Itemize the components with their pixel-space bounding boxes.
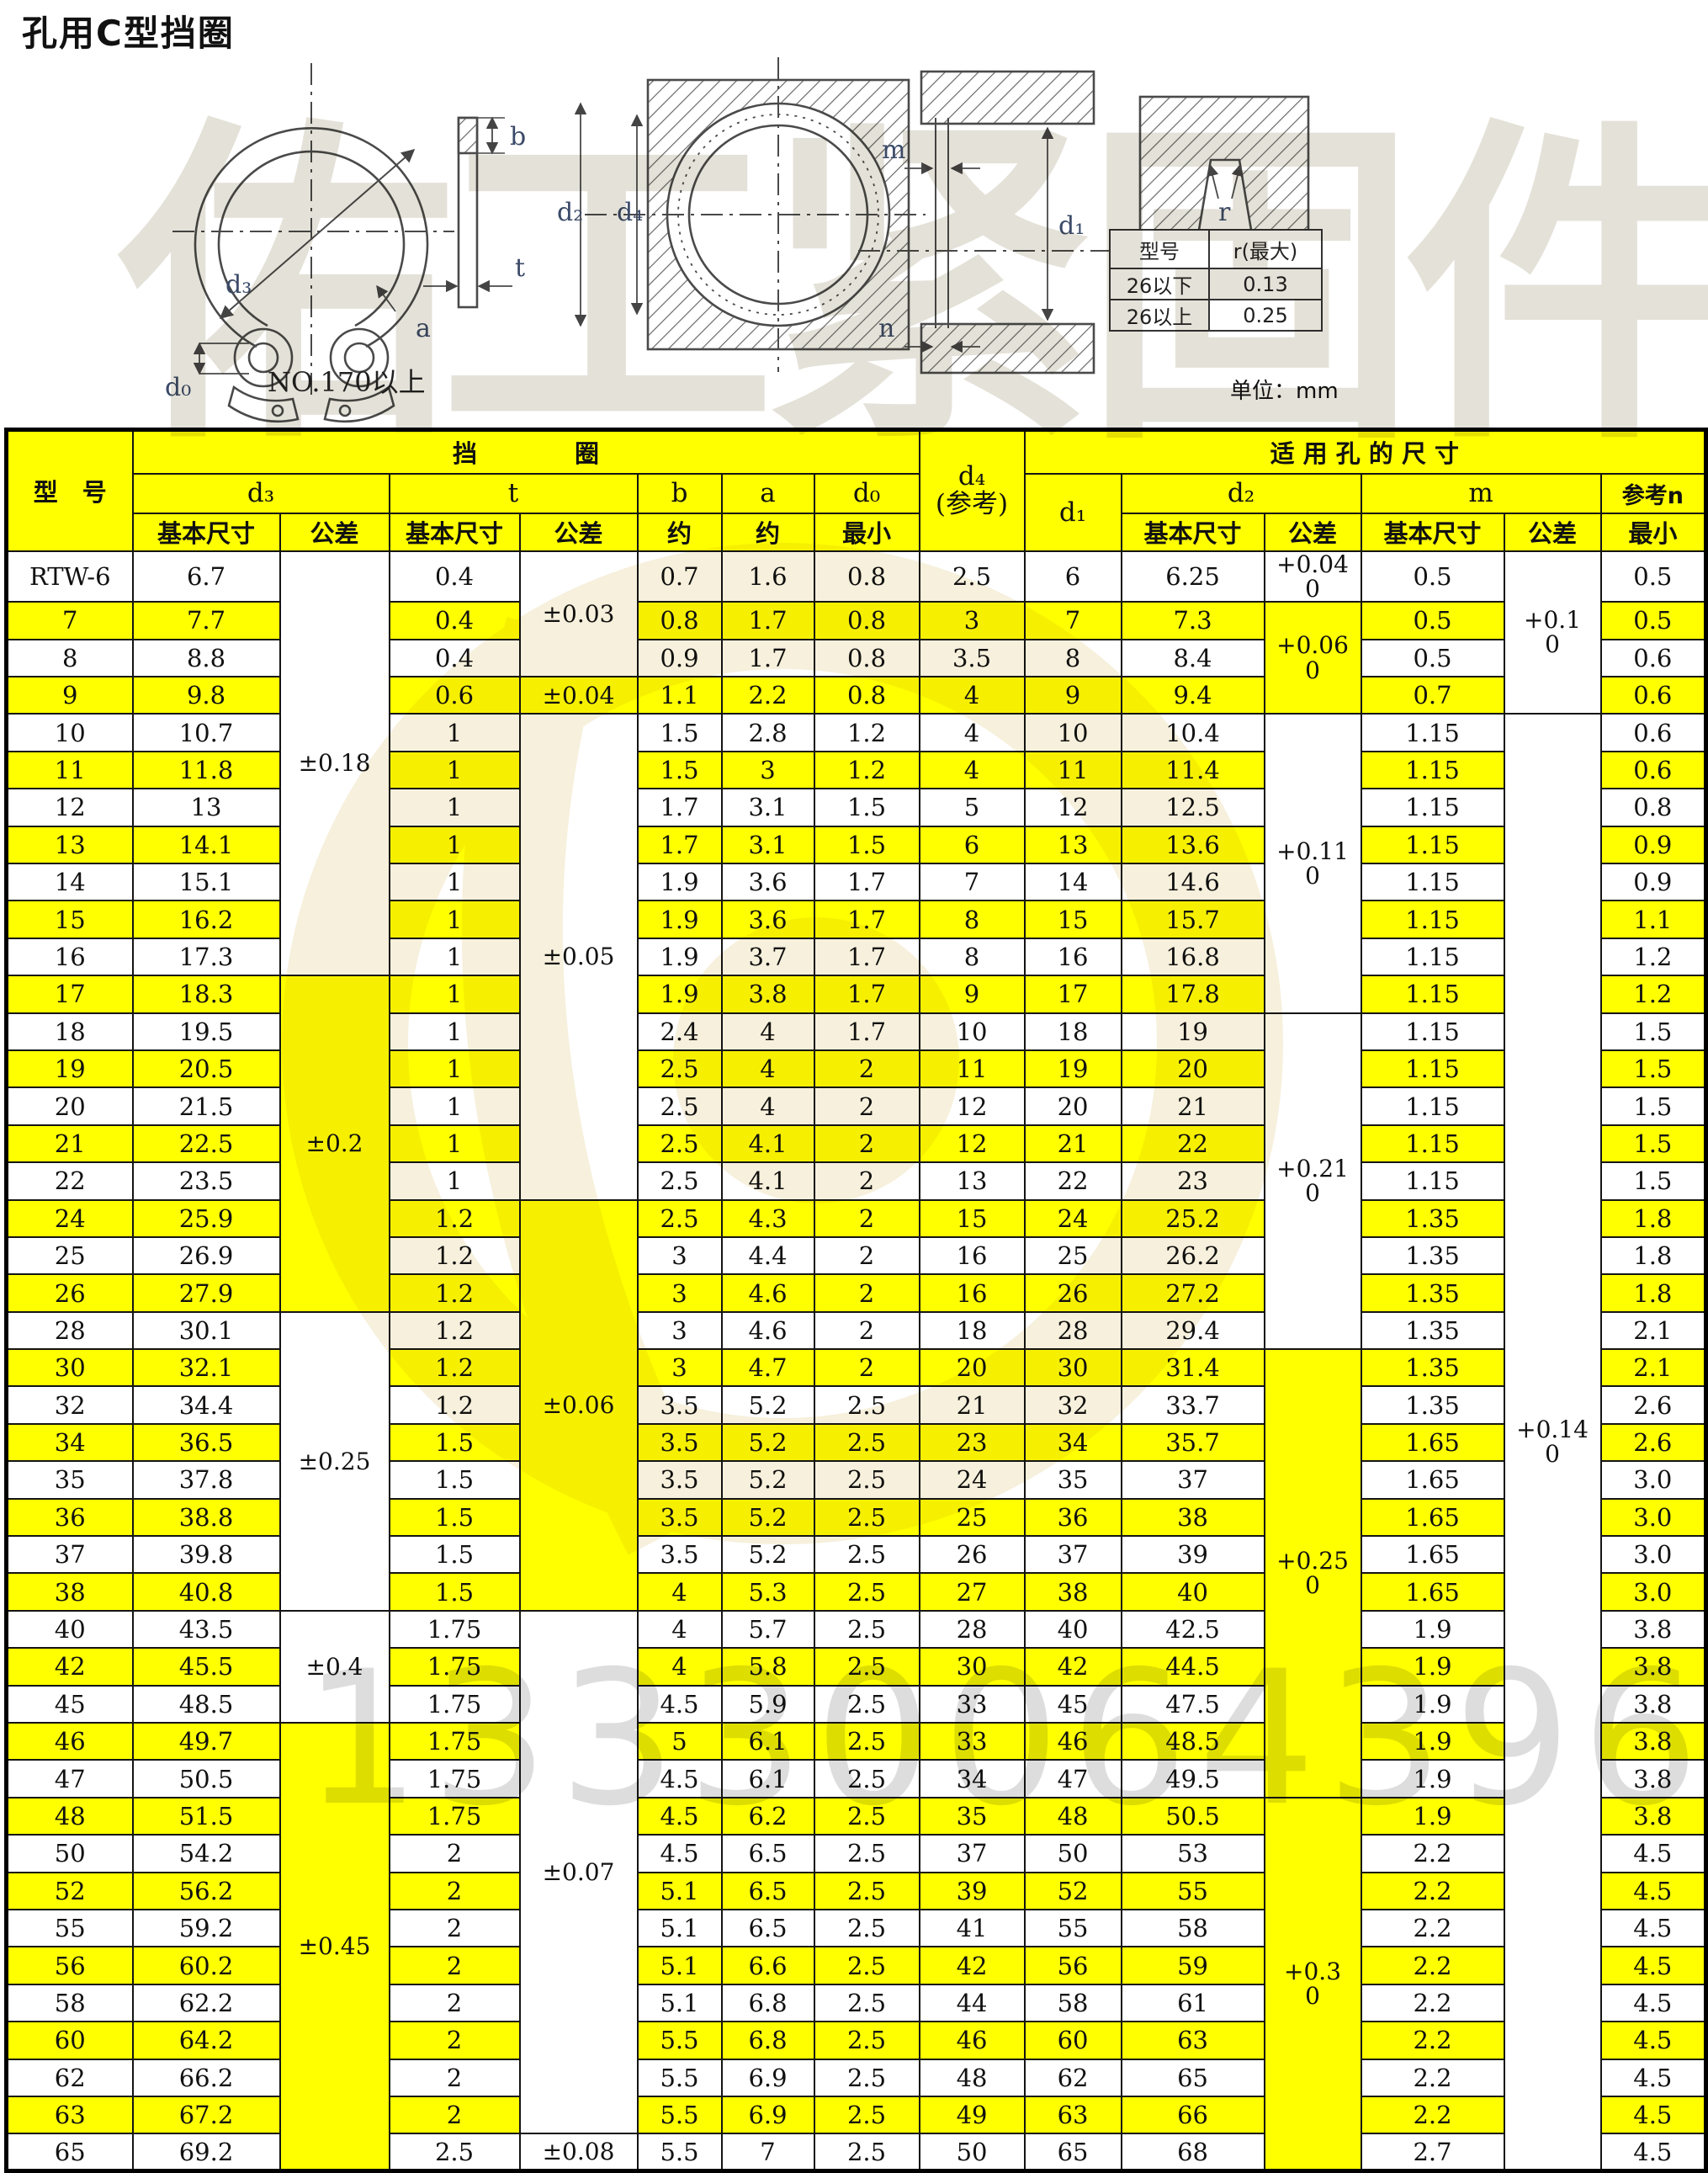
cell-d2-basic: 29.4 xyxy=(1122,1312,1265,1349)
cell-t-basic: 2 xyxy=(390,1947,520,1984)
cell-d0-min: 2.5 xyxy=(814,1723,920,1760)
cell-d0-min: 2 xyxy=(814,1274,920,1311)
cell-a-approx: 3.7 xyxy=(722,938,814,975)
cell-a-approx: 4.3 xyxy=(722,1200,814,1237)
cell-d0-min: 1.2 xyxy=(814,752,920,789)
cell-model: 46 xyxy=(7,1723,133,1760)
cell-t-basic: 0.4 xyxy=(390,640,520,677)
cell-d1: 30 xyxy=(1025,1349,1122,1386)
cell-d0-min: 2.5 xyxy=(814,1648,920,1685)
cell-m-basic: 1.15 xyxy=(1361,826,1504,863)
cell-d3-tolerance: ±0.2 xyxy=(280,975,390,1312)
cell-d4-ref: 8 xyxy=(920,938,1025,975)
cell-t-basic: 1 xyxy=(390,714,520,751)
cell-a-approx: 3 xyxy=(722,752,814,789)
cell-d3-basic: 51.5 xyxy=(133,1798,280,1835)
cell-d2-basic: 38 xyxy=(1122,1499,1265,1536)
header-d4: d₄ (参考) xyxy=(920,430,1025,551)
cell-t-basic: 0.6 xyxy=(390,677,520,714)
cell-d0-min: 2.5 xyxy=(814,1835,920,1872)
cell-d2-basic: 23 xyxy=(1122,1162,1265,1199)
cell-d1: 16 xyxy=(1025,938,1122,975)
spec-row-9: 99.80.6±0.041.12.20.8499.40.70.6 xyxy=(7,677,1706,714)
header-d0: d₀ xyxy=(814,474,920,513)
cell-a-approx: 4.1 xyxy=(722,1125,814,1162)
cell-b-approx: 1.5 xyxy=(638,714,722,751)
cell-a-approx: 4 xyxy=(722,1013,814,1050)
cell-d2-basic: 59 xyxy=(1122,1947,1265,1984)
r-table-cell: 0.13 xyxy=(1209,268,1322,300)
cell-d2-tolerance: +0.04 0 xyxy=(1265,551,1361,603)
cell-d4-ref: 3.5 xyxy=(920,640,1025,677)
cell-t-basic: 0.4 xyxy=(390,602,520,639)
cell-n-min: 2.6 xyxy=(1601,1386,1706,1423)
cell-d2-basic: 68 xyxy=(1122,2133,1265,2170)
cell-n-min: 1.8 xyxy=(1601,1237,1706,1274)
r-table-cell: 型号 xyxy=(1110,230,1209,268)
main-spec-table: 型 号 挡 圈 d₄ (参考) 适 用 孔 的 尺 寸 d₃ t b a d₀ … xyxy=(4,428,1708,2173)
cell-d2-basic: 44.5 xyxy=(1122,1648,1265,1685)
cell-t-basic: 1 xyxy=(390,826,520,863)
cell-d3-basic: 45.5 xyxy=(133,1648,280,1685)
cell-d1: 62 xyxy=(1025,2059,1122,2096)
cell-b-approx: 2.5 xyxy=(638,1162,722,1199)
cell-d3-basic: 64.2 xyxy=(133,2022,280,2059)
cell-d4-ref: 37 xyxy=(920,1835,1025,1872)
cell-d3-basic: 38.8 xyxy=(133,1499,280,1536)
label-d0: d₀ xyxy=(165,373,191,402)
spec-row-63: 6367.225.56.92.54963662.24.5 xyxy=(7,2096,1706,2133)
spec-row-14: 1415.111.93.61.771414.61.150.9 xyxy=(7,863,1706,901)
header-m: m xyxy=(1361,474,1601,513)
cell-m-basic: 1.35 xyxy=(1361,1274,1504,1311)
cell-d4-ref: 20 xyxy=(920,1349,1025,1386)
cell-n-min: 0.5 xyxy=(1601,551,1706,603)
cell-m-basic: 1.15 xyxy=(1361,938,1504,975)
cell-model: 19 xyxy=(7,1050,133,1087)
cell-d4-ref: 9 xyxy=(920,975,1025,1012)
cell-model: 58 xyxy=(7,1984,133,2022)
cell-d4-ref: 18 xyxy=(920,1312,1025,1349)
cell-d3-basic: 54.2 xyxy=(133,1835,280,1872)
cell-d1: 45 xyxy=(1025,1686,1122,1723)
cell-d3-basic: 22.5 xyxy=(133,1125,280,1162)
cell-d4-ref: 26 xyxy=(920,1536,1025,1573)
cell-b-approx: 1.1 xyxy=(638,677,722,714)
label-a: a xyxy=(416,314,431,343)
cell-a-approx: 4.1 xyxy=(722,1162,814,1199)
label-d3: d₃ xyxy=(225,270,252,300)
cell-a-approx: 6.2 xyxy=(722,1798,814,1835)
cell-d2-basic: 21 xyxy=(1122,1087,1265,1124)
cell-d2-basic: 27.2 xyxy=(1122,1274,1265,1311)
spec-row-40: 4043.5±0.41.75±0.0745.72.5284042.51.93.8 xyxy=(7,1611,1706,1648)
cell-d1: 24 xyxy=(1025,1200,1122,1237)
cell-d3-basic: 66.2 xyxy=(133,2059,280,2096)
cell-t-basic: 1.75 xyxy=(390,1611,520,1648)
spec-row-20: 2021.512.5421220211.151.5 xyxy=(7,1087,1706,1124)
cell-b-approx: 4 xyxy=(638,1648,722,1685)
spec-row-12: 121311.73.11.551212.51.150.8 xyxy=(7,789,1706,826)
cell-n-min: 4.5 xyxy=(1601,1947,1706,1984)
header-model: 型 号 xyxy=(7,430,133,551)
cell-n-min: 4.5 xyxy=(1601,1873,1706,1910)
cell-t-basic: 1 xyxy=(390,1087,520,1124)
cell-d3-basic: 14.1 xyxy=(133,826,280,863)
cell-d2-basic: 58 xyxy=(1122,1910,1265,1947)
spec-row-18: 1819.512.441.7101819+0.21 01.151.5 xyxy=(7,1013,1706,1050)
cell-a-approx: 2.8 xyxy=(722,714,814,751)
cell-d3-basic: 30.1 xyxy=(133,1312,280,1349)
cell-m-basic: 1.65 xyxy=(1361,1536,1504,1573)
cell-d0-min: 1.2 xyxy=(814,714,920,751)
cell-d0-min: 0.8 xyxy=(814,602,920,639)
spec-row-47: 4750.51.754.56.12.5344749.51.93.8 xyxy=(7,1760,1706,1797)
cell-b-approx: 5.5 xyxy=(638,2133,722,2170)
cell-n-min: 1.2 xyxy=(1601,938,1706,975)
cell-model: 47 xyxy=(7,1760,133,1797)
cell-d4-ref: 11 xyxy=(920,1050,1025,1087)
cell-t-basic: 1 xyxy=(390,1125,520,1162)
cell-m-basic: 2.2 xyxy=(1361,1835,1504,1872)
cell-d3-basic: 15.1 xyxy=(133,863,280,901)
cell-t-basic: 1.5 xyxy=(390,1461,520,1498)
cell-d2-basic: 25.2 xyxy=(1122,1200,1265,1237)
front-view-caption: NO.170以上 xyxy=(268,366,426,398)
cell-model: 32 xyxy=(7,1386,133,1423)
cell-d1: 35 xyxy=(1025,1461,1122,1498)
cell-d0-min: 1.7 xyxy=(814,975,920,1012)
cell-b-approx: 1.5 xyxy=(638,752,722,789)
cell-d3-tolerance: ±0.25 xyxy=(280,1312,390,1611)
cell-d2-basic: 19 xyxy=(1122,1013,1265,1050)
cell-d2-basic: 6.25 xyxy=(1122,551,1265,603)
cell-d3-basic: 40.8 xyxy=(133,1573,280,1610)
cell-n-min: 4.5 xyxy=(1601,1984,1706,2022)
cell-d0-min: 0.8 xyxy=(814,640,920,677)
spec-row-55: 5559.225.16.52.54155582.24.5 xyxy=(7,1910,1706,1947)
cell-model: 65 xyxy=(7,2133,133,2170)
cell-d3-basic: 34.4 xyxy=(133,1386,280,1423)
cell-m-basic: 2.2 xyxy=(1361,1873,1504,1910)
cell-d4-ref: 34 xyxy=(920,1760,1025,1797)
cell-a-approx: 6.5 xyxy=(722,1835,814,1872)
cell-model: 37 xyxy=(7,1536,133,1573)
cell-n-min: 0.9 xyxy=(1601,826,1706,863)
cell-t-basic: 2 xyxy=(390,2096,520,2133)
cell-d0-min: 2 xyxy=(814,1312,920,1349)
cell-t-basic: 1 xyxy=(390,1050,520,1087)
cell-m-basic: 1.35 xyxy=(1361,1349,1504,1386)
cell-d1: 36 xyxy=(1025,1499,1122,1536)
cell-d0-min: 2.5 xyxy=(814,2022,920,2059)
cell-d1: 26 xyxy=(1025,1274,1122,1311)
header-a: a xyxy=(722,474,814,513)
cell-d1: 17 xyxy=(1025,975,1122,1012)
cell-n-min: 2.1 xyxy=(1601,1312,1706,1349)
cell-b-approx: 3 xyxy=(638,1274,722,1311)
cell-d0-min: 2.5 xyxy=(814,1947,920,1984)
cell-d1: 11 xyxy=(1025,752,1122,789)
cell-m-basic: 1.9 xyxy=(1361,1723,1504,1760)
cell-model: 42 xyxy=(7,1648,133,1685)
cell-model: 40 xyxy=(7,1611,133,1648)
cell-b-approx: 4.5 xyxy=(638,1835,722,1872)
cell-b-approx: 5.1 xyxy=(638,1947,722,1984)
cell-d0-min: 2.5 xyxy=(814,2096,920,2133)
cell-d3-basic: 69.2 xyxy=(133,2133,280,2170)
spec-row-45: 4548.51.754.55.92.5334547.51.93.8 xyxy=(7,1686,1706,1723)
cell-model: 26 xyxy=(7,1274,133,1311)
cell-t-basic: 1 xyxy=(390,938,520,975)
cell-d0-min: 1.7 xyxy=(814,938,920,975)
cell-d4-ref: 33 xyxy=(920,1723,1025,1760)
cell-d4-ref: 39 xyxy=(920,1873,1025,1910)
cell-t-basic: 1.5 xyxy=(390,1573,520,1610)
cell-t-basic: 1.5 xyxy=(390,1536,520,1573)
cell-t-basic: 1.2 xyxy=(390,1200,520,1237)
cell-model: 30 xyxy=(7,1349,133,1386)
cell-d2-basic: 55 xyxy=(1122,1873,1265,1910)
cell-model: 34 xyxy=(7,1424,133,1461)
cell-a-approx: 4 xyxy=(722,1087,814,1124)
spec-row-34: 3436.51.53.55.22.5233435.71.652.6 xyxy=(7,1424,1706,1461)
spec-row-62: 6266.225.56.92.54862652.24.5 xyxy=(7,2059,1706,2096)
cell-b-approx: 4.5 xyxy=(638,1798,722,1835)
cell-b-approx: 5.5 xyxy=(638,2096,722,2133)
cell-t-basic: 2 xyxy=(390,1910,520,1947)
cell-d4-ref: 10 xyxy=(920,1013,1025,1050)
cell-d1: 12 xyxy=(1025,789,1122,826)
cell-n-min: 0.6 xyxy=(1601,752,1706,789)
cell-d1: 38 xyxy=(1025,1573,1122,1610)
header-d2-tol: 公差 xyxy=(1265,513,1361,551)
cell-m-basic: 1.9 xyxy=(1361,1798,1504,1835)
r-max-table-body: 型号r(最大)26以下0.1326以上0.25 xyxy=(1110,230,1322,331)
cell-b-approx: 2.4 xyxy=(638,1013,722,1050)
cell-d3-basic: 18.3 xyxy=(133,975,280,1012)
cell-b-approx: 2.5 xyxy=(638,1125,722,1162)
cell-d3-basic: 67.2 xyxy=(133,2096,280,2133)
cell-a-approx: 3.8 xyxy=(722,975,814,1012)
spec-row-16: 1617.311.93.71.781616.81.151.2 xyxy=(7,938,1706,975)
cell-d2-basic: 49.5 xyxy=(1122,1760,1265,1797)
cell-d2-basic: 66 xyxy=(1122,2096,1265,2133)
cell-d2-basic: 20 xyxy=(1122,1050,1265,1087)
cell-b-approx: 0.9 xyxy=(638,640,722,677)
cell-d0-min: 2.5 xyxy=(814,1611,920,1648)
cell-b-approx: 0.8 xyxy=(638,602,722,639)
cell-m-basic: 2.2 xyxy=(1361,2022,1504,2059)
cell-a-approx: 5.2 xyxy=(722,1386,814,1423)
cell-m-basic: 1.9 xyxy=(1361,1611,1504,1648)
cell-n-min: 1.1 xyxy=(1601,901,1706,938)
cell-d1: 8 xyxy=(1025,640,1122,677)
cell-d4-ref: 8 xyxy=(920,901,1025,938)
cell-d3-basic: 36.5 xyxy=(133,1424,280,1461)
cell-m-basic: 2.2 xyxy=(1361,1984,1504,2022)
cell-d3-basic: 25.9 xyxy=(133,1200,280,1237)
cell-m-basic: 1.9 xyxy=(1361,1648,1504,1685)
header-b: b xyxy=(638,474,722,513)
cell-model: 48 xyxy=(7,1798,133,1835)
cell-d4-ref: 41 xyxy=(920,1910,1025,1947)
spec-row-8: 88.80.40.91.70.83.588.40.50.6 xyxy=(7,640,1706,677)
cell-d0-min: 2.5 xyxy=(814,1386,920,1423)
cell-d2-basic: 48.5 xyxy=(1122,1723,1265,1760)
cell-n-min: 1.8 xyxy=(1601,1200,1706,1237)
cell-m-basic: 1.35 xyxy=(1361,1237,1504,1274)
cell-b-approx: 5.1 xyxy=(638,1873,722,1910)
cell-model: 11 xyxy=(7,752,133,789)
cell-b-approx: 1.7 xyxy=(638,826,722,863)
cell-d1: 32 xyxy=(1025,1386,1122,1423)
cell-d3-basic: 23.5 xyxy=(133,1162,280,1199)
cell-a-approx: 3.1 xyxy=(722,826,814,863)
cell-m-basic: 1.15 xyxy=(1361,714,1504,751)
cell-n-min: 3.8 xyxy=(1601,1723,1706,1760)
cell-t-basic: 1.2 xyxy=(390,1312,520,1349)
cell-d0-min: 0.8 xyxy=(814,551,920,603)
cell-model: 60 xyxy=(7,2022,133,2059)
cell-t-basic: 1 xyxy=(390,901,520,938)
cell-t-basic: 1 xyxy=(390,789,520,826)
cell-d1: 34 xyxy=(1025,1424,1122,1461)
cell-a-approx: 3.1 xyxy=(722,789,814,826)
cell-d3-tolerance: ±0.4 xyxy=(280,1611,390,1723)
cell-a-approx: 4.6 xyxy=(722,1312,814,1349)
cell-d2-basic: 8.4 xyxy=(1122,640,1265,677)
cell-t-basic: 1 xyxy=(390,1162,520,1199)
cell-d1: 18 xyxy=(1025,1013,1122,1050)
cell-a-approx: 6.1 xyxy=(722,1723,814,1760)
cell-d2-basic: 33.7 xyxy=(1122,1386,1265,1423)
cell-m-basic: 0.5 xyxy=(1361,640,1504,677)
cell-a-approx: 5.2 xyxy=(722,1536,814,1573)
cell-t-basic: 1.2 xyxy=(390,1274,520,1311)
cell-n-min: 4.5 xyxy=(1601,2133,1706,2170)
cell-a-approx: 6.8 xyxy=(722,2022,814,2059)
cell-d0-min: 1.7 xyxy=(814,901,920,938)
cell-model: 52 xyxy=(7,1873,133,1910)
cell-d4-ref: 7 xyxy=(920,863,1025,901)
cell-d0-min: 2 xyxy=(814,1087,920,1124)
cell-n-min: 1.5 xyxy=(1601,1013,1706,1050)
spec-row-56: 5660.225.16.62.54256592.24.5 xyxy=(7,1947,1706,1984)
label-r: r xyxy=(1218,198,1231,227)
cell-a-approx: 1.7 xyxy=(722,640,814,677)
cell-model: 7 xyxy=(7,602,133,639)
cell-d1: 14 xyxy=(1025,863,1122,901)
cell-d3-tolerance: ±0.18 xyxy=(280,551,390,976)
header-d0-min: 最小 xyxy=(814,513,920,551)
cell-d4-ref: 2.5 xyxy=(920,551,1025,603)
cell-t-basic: 1.2 xyxy=(390,1386,520,1423)
spec-row-17: 1718.3±0.211.93.81.791717.81.151.2 xyxy=(7,975,1706,1012)
cell-t-basic: 1 xyxy=(390,752,520,789)
spec-row-24: 2425.91.2±0.062.54.32152425.21.351.8 xyxy=(7,1200,1706,1237)
cell-d3-basic: 37.8 xyxy=(133,1461,280,1498)
cell-d4-ref: 24 xyxy=(920,1461,1025,1498)
cell-d4-ref: 23 xyxy=(920,1424,1025,1461)
cell-a-approx: 6.8 xyxy=(722,1984,814,2022)
cell-t-basic: 2 xyxy=(390,2022,520,2059)
cell-a-approx: 5.3 xyxy=(722,1573,814,1610)
spec-row-36: 3638.81.53.55.22.52536381.653.0 xyxy=(7,1499,1706,1536)
cell-n-min: 0.6 xyxy=(1601,640,1706,677)
cell-t-basic: 2 xyxy=(390,2059,520,2096)
cell-a-approx: 4.7 xyxy=(722,1349,814,1386)
cell-d4-ref: 21 xyxy=(920,1386,1025,1423)
cell-a-approx: 6.5 xyxy=(722,1910,814,1947)
cell-n-min: 3.8 xyxy=(1601,1648,1706,1685)
cell-d3-basic: 20.5 xyxy=(133,1050,280,1087)
cell-d2-basic: 16.8 xyxy=(1122,938,1265,975)
cell-a-approx: 3.6 xyxy=(722,901,814,938)
cell-d0-min: 1.5 xyxy=(814,826,920,863)
cell-d3-basic: 6.7 xyxy=(133,551,280,603)
cell-n-min: 1.5 xyxy=(1601,1125,1706,1162)
header-ring-group: 挡 圈 xyxy=(133,430,920,474)
cell-d0-min: 2 xyxy=(814,1125,920,1162)
cell-m-basic: 1.15 xyxy=(1361,1087,1504,1124)
cell-d3-basic: 50.5 xyxy=(133,1760,280,1797)
spec-row-22: 2223.512.54.121322231.151.5 xyxy=(7,1162,1706,1199)
cell-n-min: 1.5 xyxy=(1601,1162,1706,1199)
cell-model: 13 xyxy=(7,826,133,863)
header-d3: d₃ xyxy=(133,474,390,513)
cell-d4-ref: 16 xyxy=(920,1237,1025,1274)
cell-d0-min: 2 xyxy=(814,1349,920,1386)
cell-d1: 46 xyxy=(1025,1723,1122,1760)
cell-n-min: 1.8 xyxy=(1601,1274,1706,1311)
cell-m-basic: 0.5 xyxy=(1361,602,1504,639)
cell-model: 22 xyxy=(7,1162,133,1199)
cell-d3-basic: 62.2 xyxy=(133,1984,280,2022)
cell-n-min: 3.8 xyxy=(1601,1798,1706,1835)
spec-row-30: 3032.11.234.72203031.4+0.25 01.352.1 xyxy=(7,1349,1706,1386)
cell-a-approx: 7 xyxy=(722,2133,814,2170)
cell-m-basic: 1.65 xyxy=(1361,1499,1504,1536)
cell-b-approx: 3 xyxy=(638,1237,722,1274)
cell-b-approx: 1.7 xyxy=(638,789,722,826)
spec-row-13: 1314.111.73.11.561313.61.150.9 xyxy=(7,826,1706,863)
cell-t-basic: 1.75 xyxy=(390,1723,520,1760)
cell-d3-basic: 8.8 xyxy=(133,640,280,677)
cell-model: 45 xyxy=(7,1686,133,1723)
cell-d2-basic: 15.7 xyxy=(1122,901,1265,938)
cell-m-basic: 1.35 xyxy=(1361,1386,1504,1423)
cell-d0-min: 2.5 xyxy=(814,1536,920,1573)
cell-d2-basic: 65 xyxy=(1122,2059,1265,2096)
cell-n-min: 4.5 xyxy=(1601,1835,1706,1872)
cell-t-basic: 1.75 xyxy=(390,1648,520,1685)
cell-t-basic: 0.4 xyxy=(390,551,520,603)
cell-t-basic: 2 xyxy=(390,1835,520,1872)
cell-model: 35 xyxy=(7,1461,133,1498)
cell-d1: 58 xyxy=(1025,1984,1122,2022)
cell-model: 21 xyxy=(7,1125,133,1162)
cell-d3-basic: 56.2 xyxy=(133,1873,280,1910)
cell-d1: 52 xyxy=(1025,1873,1122,1910)
cell-d2-basic: 10.4 xyxy=(1122,714,1265,751)
page-title: 孔用C型挡圈 xyxy=(22,5,235,56)
spec-row-42: 4245.51.7545.82.5304244.51.93.8 xyxy=(7,1648,1706,1685)
label-b: b xyxy=(510,122,526,151)
spec-row-25: 2526.91.234.42162526.21.351.8 xyxy=(7,1237,1706,1274)
cell-model: 28 xyxy=(7,1312,133,1349)
main-table-body: RTW-66.7±0.180.4±0.030.71.60.82.566.25+0… xyxy=(7,551,1706,2171)
